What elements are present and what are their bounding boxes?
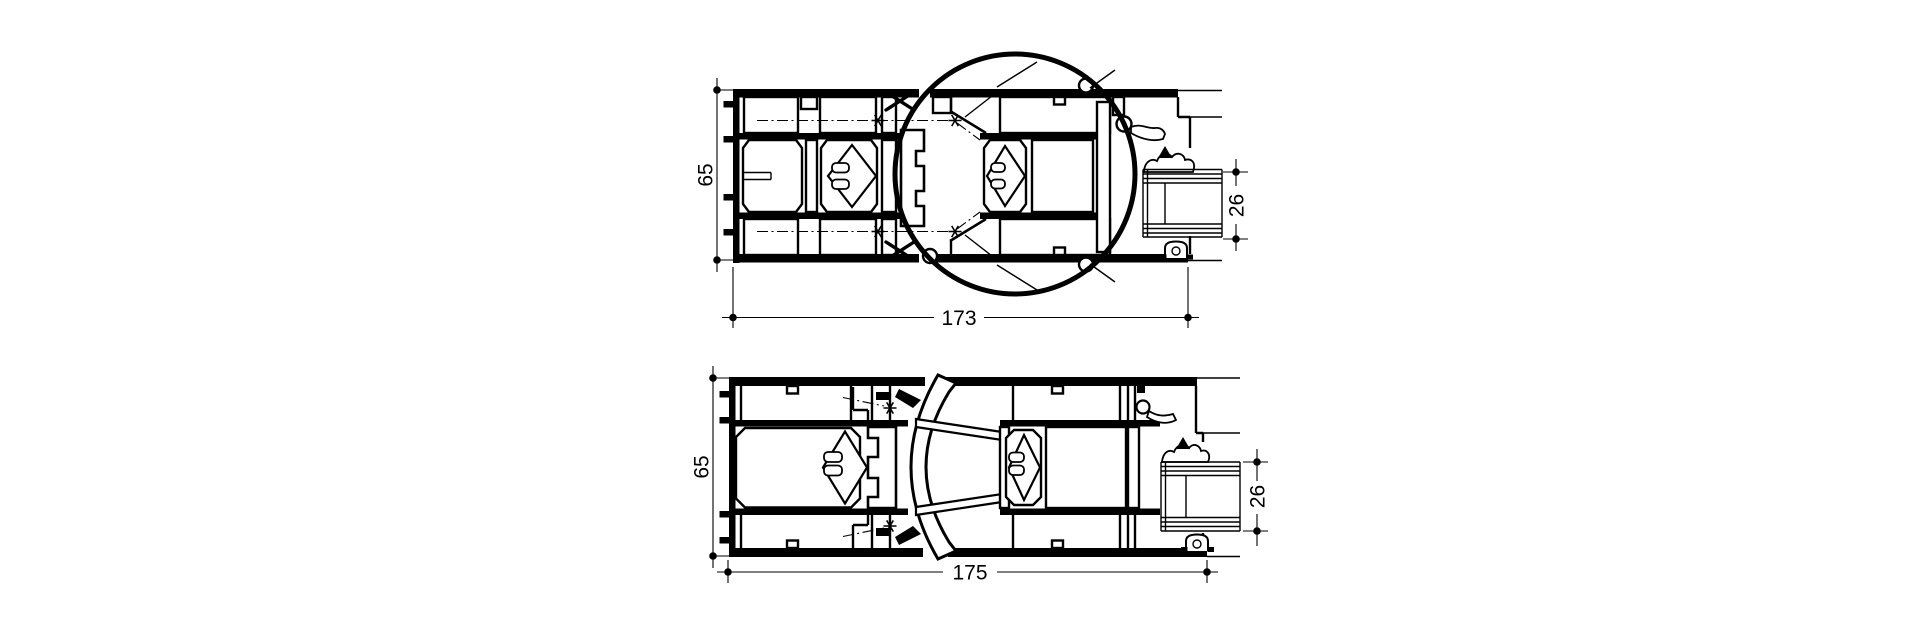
top-glazing-unit	[1143, 170, 1222, 238]
dim-label-bottom-width: 175	[952, 562, 987, 585]
technical-drawing: 65 173 26	[0, 0, 1920, 640]
dim-label-top-height: 65	[695, 163, 718, 186]
bottom-glazing-unit	[1161, 462, 1240, 531]
bottom-section-drawing	[720, 375, 1241, 559]
top-section-drawing	[724, 54, 1223, 294]
dim-label-top-width: 173	[941, 307, 976, 330]
dim-label-bottom-height: 65	[691, 455, 714, 478]
drawing-canvas: 65 173 26	[0, 0, 1920, 640]
dim-label-bottom-glazing: 26	[1247, 485, 1270, 508]
dim-label-top-glazing: 26	[1226, 194, 1249, 217]
